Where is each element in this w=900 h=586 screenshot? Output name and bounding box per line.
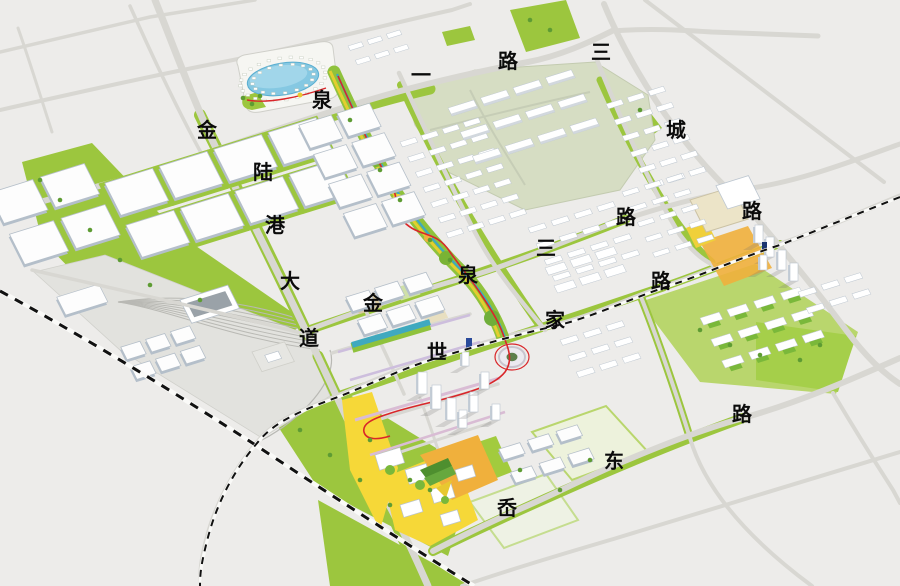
tower-building (418, 372, 427, 394)
tower-building (778, 250, 786, 270)
tower-building (462, 352, 469, 366)
tower-building (760, 255, 767, 270)
tower-building (432, 385, 441, 409)
tower-building (790, 263, 798, 281)
tower-building (481, 372, 489, 389)
tower-building (447, 398, 456, 420)
tower-building (492, 404, 500, 420)
masterplan-map: 金陆港大道泉一路三城路泉三路金世家路岙东路 (0, 0, 900, 586)
masterplan-canvas (0, 0, 900, 586)
tower-building (755, 225, 763, 243)
